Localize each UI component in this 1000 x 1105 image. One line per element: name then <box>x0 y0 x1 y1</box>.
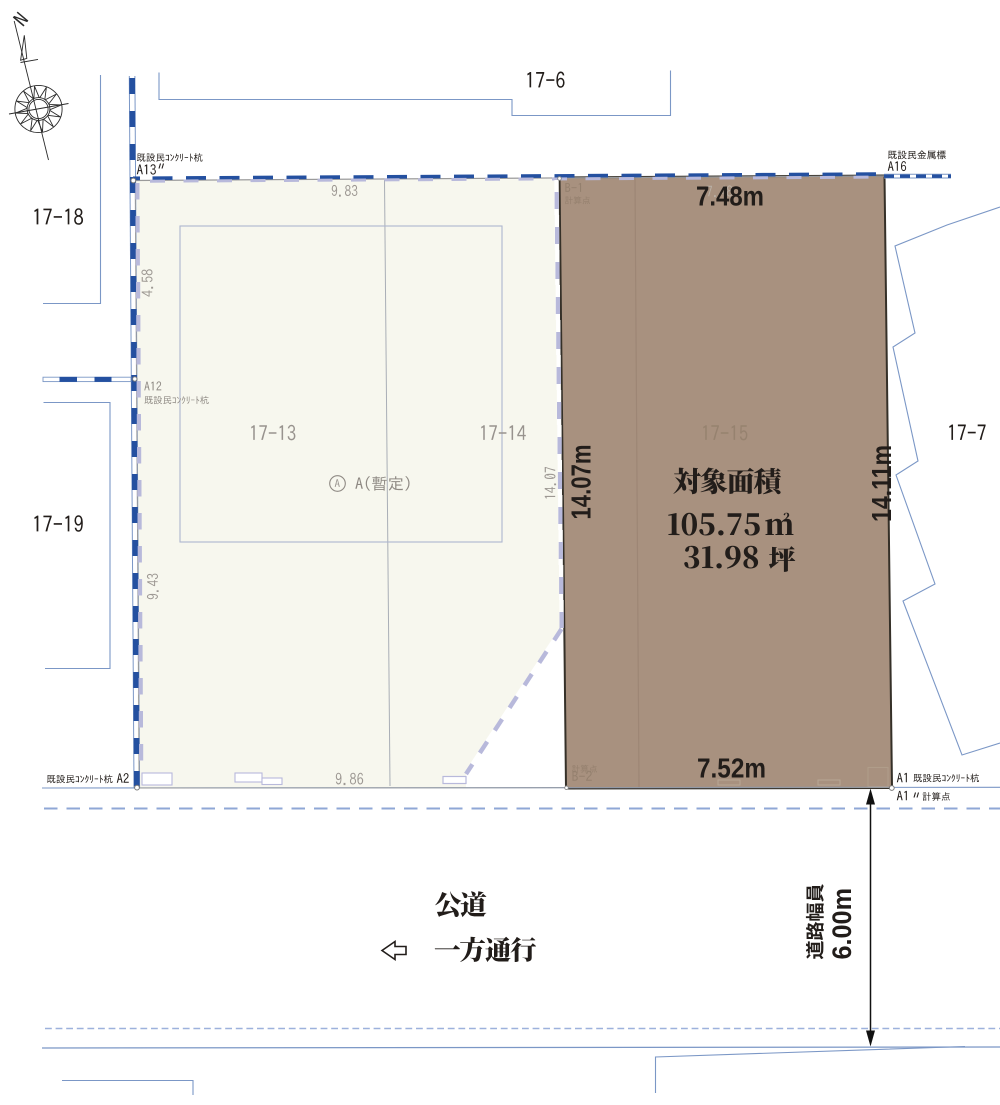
svg-text:7.48m: 7.48m <box>696 181 764 212</box>
svg-text:14.11m: 14.11m <box>866 445 897 522</box>
svg-text:6.00m: 6.00m <box>827 888 857 960</box>
svg-text:14.07m: 14.07m <box>566 445 597 520</box>
svg-text:7.52m: 7.52m <box>697 753 766 784</box>
